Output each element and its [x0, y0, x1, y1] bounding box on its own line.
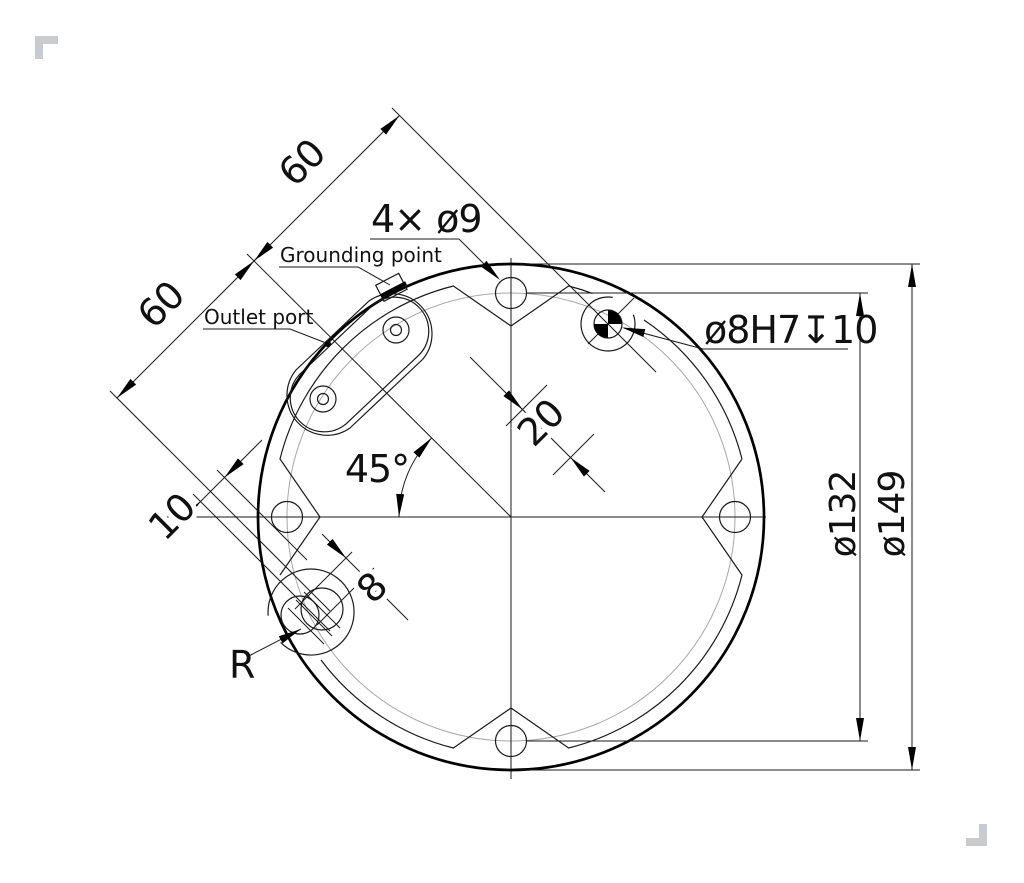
outlet-extension-line: [110, 391, 330, 611]
radius-label: R: [229, 643, 255, 687]
dimension-10-label: 10: [140, 485, 204, 549]
outlet-port-screw-bottom-washer: [310, 386, 336, 412]
outlet-hatch-1: [296, 600, 332, 636]
slot-edge-1: [295, 552, 352, 609]
drawing-svg: 60 60 20 45° 10 8 R: [0, 0, 1024, 883]
technical-drawing-canvas: 60 60 20 45° 10 8 R: [0, 0, 1024, 883]
outlet-callout: Outlet port: [203, 305, 331, 347]
dimension-60-upper: 60: [270, 131, 334, 195]
dim-10-ext-2: [217, 470, 307, 560]
dowel-callout: ø8H7↧10: [621, 308, 877, 352]
dimension-20-label: 20: [509, 391, 573, 455]
dimension-149-label: ø149: [872, 471, 913, 558]
dimension-20: 20: [470, 357, 605, 492]
dimension-45-label: 45°: [345, 447, 409, 491]
radius-callout: R: [229, 625, 303, 687]
dimension-132-label: ø132: [823, 471, 864, 558]
dim-20-ext-tick-2: [553, 434, 594, 475]
outlet-label: Outlet port: [204, 305, 313, 329]
holes-callout: 4× ø9: [370, 197, 503, 283]
corner-mark-bottom-right: [966, 824, 987, 846]
grounding-leader: [279, 267, 390, 285]
dimension-10: 10: [140, 440, 330, 631]
dowel-callout-label: ø8H7↧10: [704, 308, 877, 352]
outlet-port-screw-top: [391, 325, 402, 336]
dimension-60-lower: 60: [129, 273, 193, 337]
dimension-45deg: 45°: [345, 435, 435, 517]
grounding-callout: Grounding point: [279, 243, 442, 285]
outlet-leader-dot: [325, 341, 331, 347]
dimension-8-label: 8: [348, 564, 396, 612]
corner-mark-top-left: [35, 36, 58, 59]
holes-callout-label: 4× ø9: [371, 197, 482, 241]
outlet-leader: [203, 329, 326, 343]
grounding-label: Grounding point: [280, 243, 442, 267]
